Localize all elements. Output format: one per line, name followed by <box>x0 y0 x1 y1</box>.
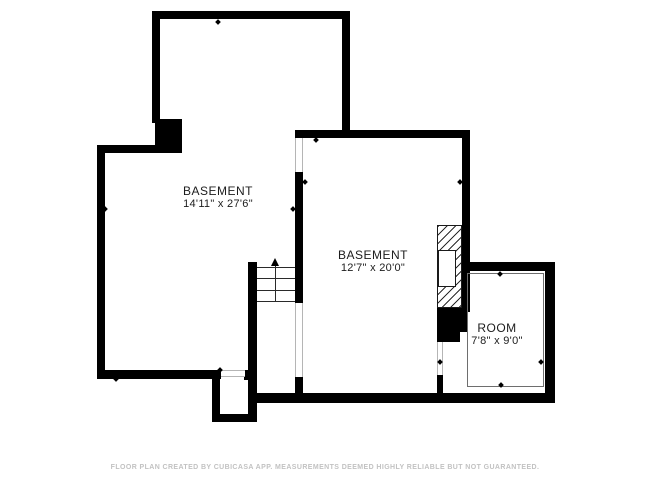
door-opening-entry-nook <box>221 370 245 377</box>
wall-divider-middle <box>295 172 303 303</box>
wall-nook-nub <box>244 370 252 380</box>
floor-plan: BASEMENT 14'11" x 27'6" BASEMENT 12'7" x… <box>0 0 650 488</box>
stairs-up-arrow-icon <box>271 258 279 266</box>
wall-room-right <box>545 262 555 403</box>
wall-tick <box>313 137 319 143</box>
room-label-basement-right: BASEMENT 12'7" x 20'0" <box>303 249 443 275</box>
wall-bottom-right-section <box>248 393 555 403</box>
wall-tick <box>215 19 221 25</box>
room-dimensions: 7'8" x 9'0" <box>452 335 542 348</box>
door-opening-divider-bottom <box>295 303 303 377</box>
room-name: BASEMENT <box>303 249 443 262</box>
room-name: BASEMENT <box>148 185 288 198</box>
wall-right-upper-section <box>342 11 350 138</box>
room-dimensions: 12'7" x 20'0" <box>303 262 443 275</box>
stair-center-line <box>275 266 276 302</box>
wall-room-top <box>467 262 555 271</box>
door-opening-divider-top <box>295 138 303 172</box>
room-name: ROOM <box>452 322 542 335</box>
wall-entry-nook-bottom <box>212 414 257 422</box>
stair-tread <box>257 278 295 279</box>
wall-tick <box>302 179 308 185</box>
wall-top-left-basement <box>97 145 182 153</box>
room-label-room: ROOM 7'8" x 9'0" <box>452 322 542 348</box>
stair-tread <box>257 290 295 291</box>
wall-divider-bottom-stub <box>295 377 303 394</box>
disclaimer-text: FLOOR PLAN CREATED BY CUBICASA APP. MEAS… <box>0 464 650 471</box>
stair-tread <box>257 267 295 268</box>
room-label-basement-left: BASEMENT 14'11" x 27'6" <box>148 185 288 211</box>
room-dimensions: 14'11" x 27'6" <box>148 198 288 211</box>
wall-left-outer <box>97 145 105 379</box>
wall-room-left-stub <box>437 375 443 393</box>
wall-top-upper-section <box>152 11 350 19</box>
wall-top-right-basement <box>295 130 470 138</box>
wall-left-upper-section <box>152 11 160 123</box>
stair-tread <box>257 301 295 302</box>
